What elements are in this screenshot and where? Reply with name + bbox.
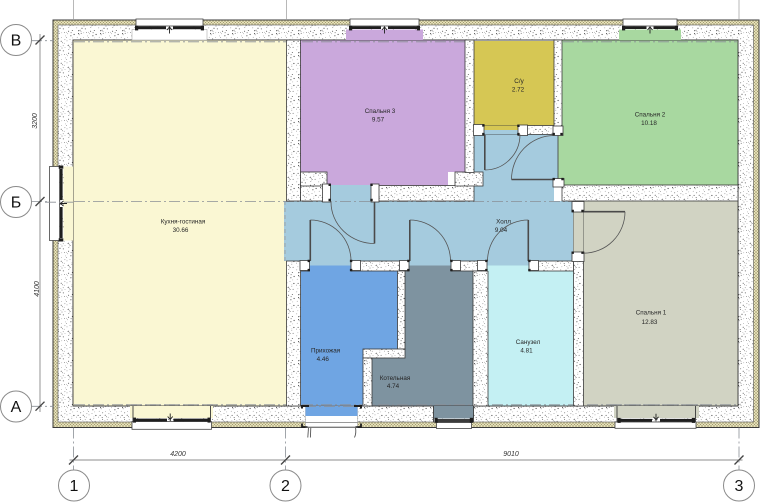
svg-text:12.83: 12.83 (642, 319, 658, 326)
svg-text:9.57: 9.57 (372, 117, 385, 124)
svg-text:4100: 4100 (34, 281, 41, 297)
svg-text:3: 3 (735, 478, 744, 495)
svg-text:10.18: 10.18 (641, 120, 657, 127)
svg-text:А: А (11, 399, 22, 416)
svg-text:3200: 3200 (32, 113, 39, 129)
svg-text:Котельная: Котельная (380, 375, 410, 382)
svg-text:Санузел: Санузел (516, 339, 541, 346)
svg-text:9.04: 9.04 (495, 227, 508, 234)
svg-text:4.46: 4.46 (317, 356, 330, 363)
svg-text:2.72: 2.72 (512, 87, 525, 94)
svg-text:4200: 4200 (170, 451, 186, 458)
svg-text:Прихожая: Прихожая (311, 348, 340, 355)
svg-text:4.74: 4.74 (387, 383, 400, 390)
svg-text:С/у: С/у (514, 78, 524, 85)
svg-text:В: В (11, 33, 22, 50)
svg-text:Б: Б (11, 195, 22, 212)
svg-text:1: 1 (70, 478, 79, 495)
svg-text:Холл: Холл (496, 218, 511, 225)
svg-text:Кухня-гостиная: Кухня-гостиная (161, 218, 206, 225)
svg-text:Спальня 1: Спальня 1 (636, 310, 667, 317)
svg-text:9010: 9010 (503, 451, 519, 458)
svg-text:30.66: 30.66 (173, 227, 189, 234)
svg-text:2: 2 (281, 478, 290, 495)
svg-text:Спальня 3: Спальня 3 (365, 108, 396, 115)
svg-text:Спальня 2: Спальня 2 (635, 111, 666, 118)
svg-text:4.81: 4.81 (520, 348, 533, 355)
